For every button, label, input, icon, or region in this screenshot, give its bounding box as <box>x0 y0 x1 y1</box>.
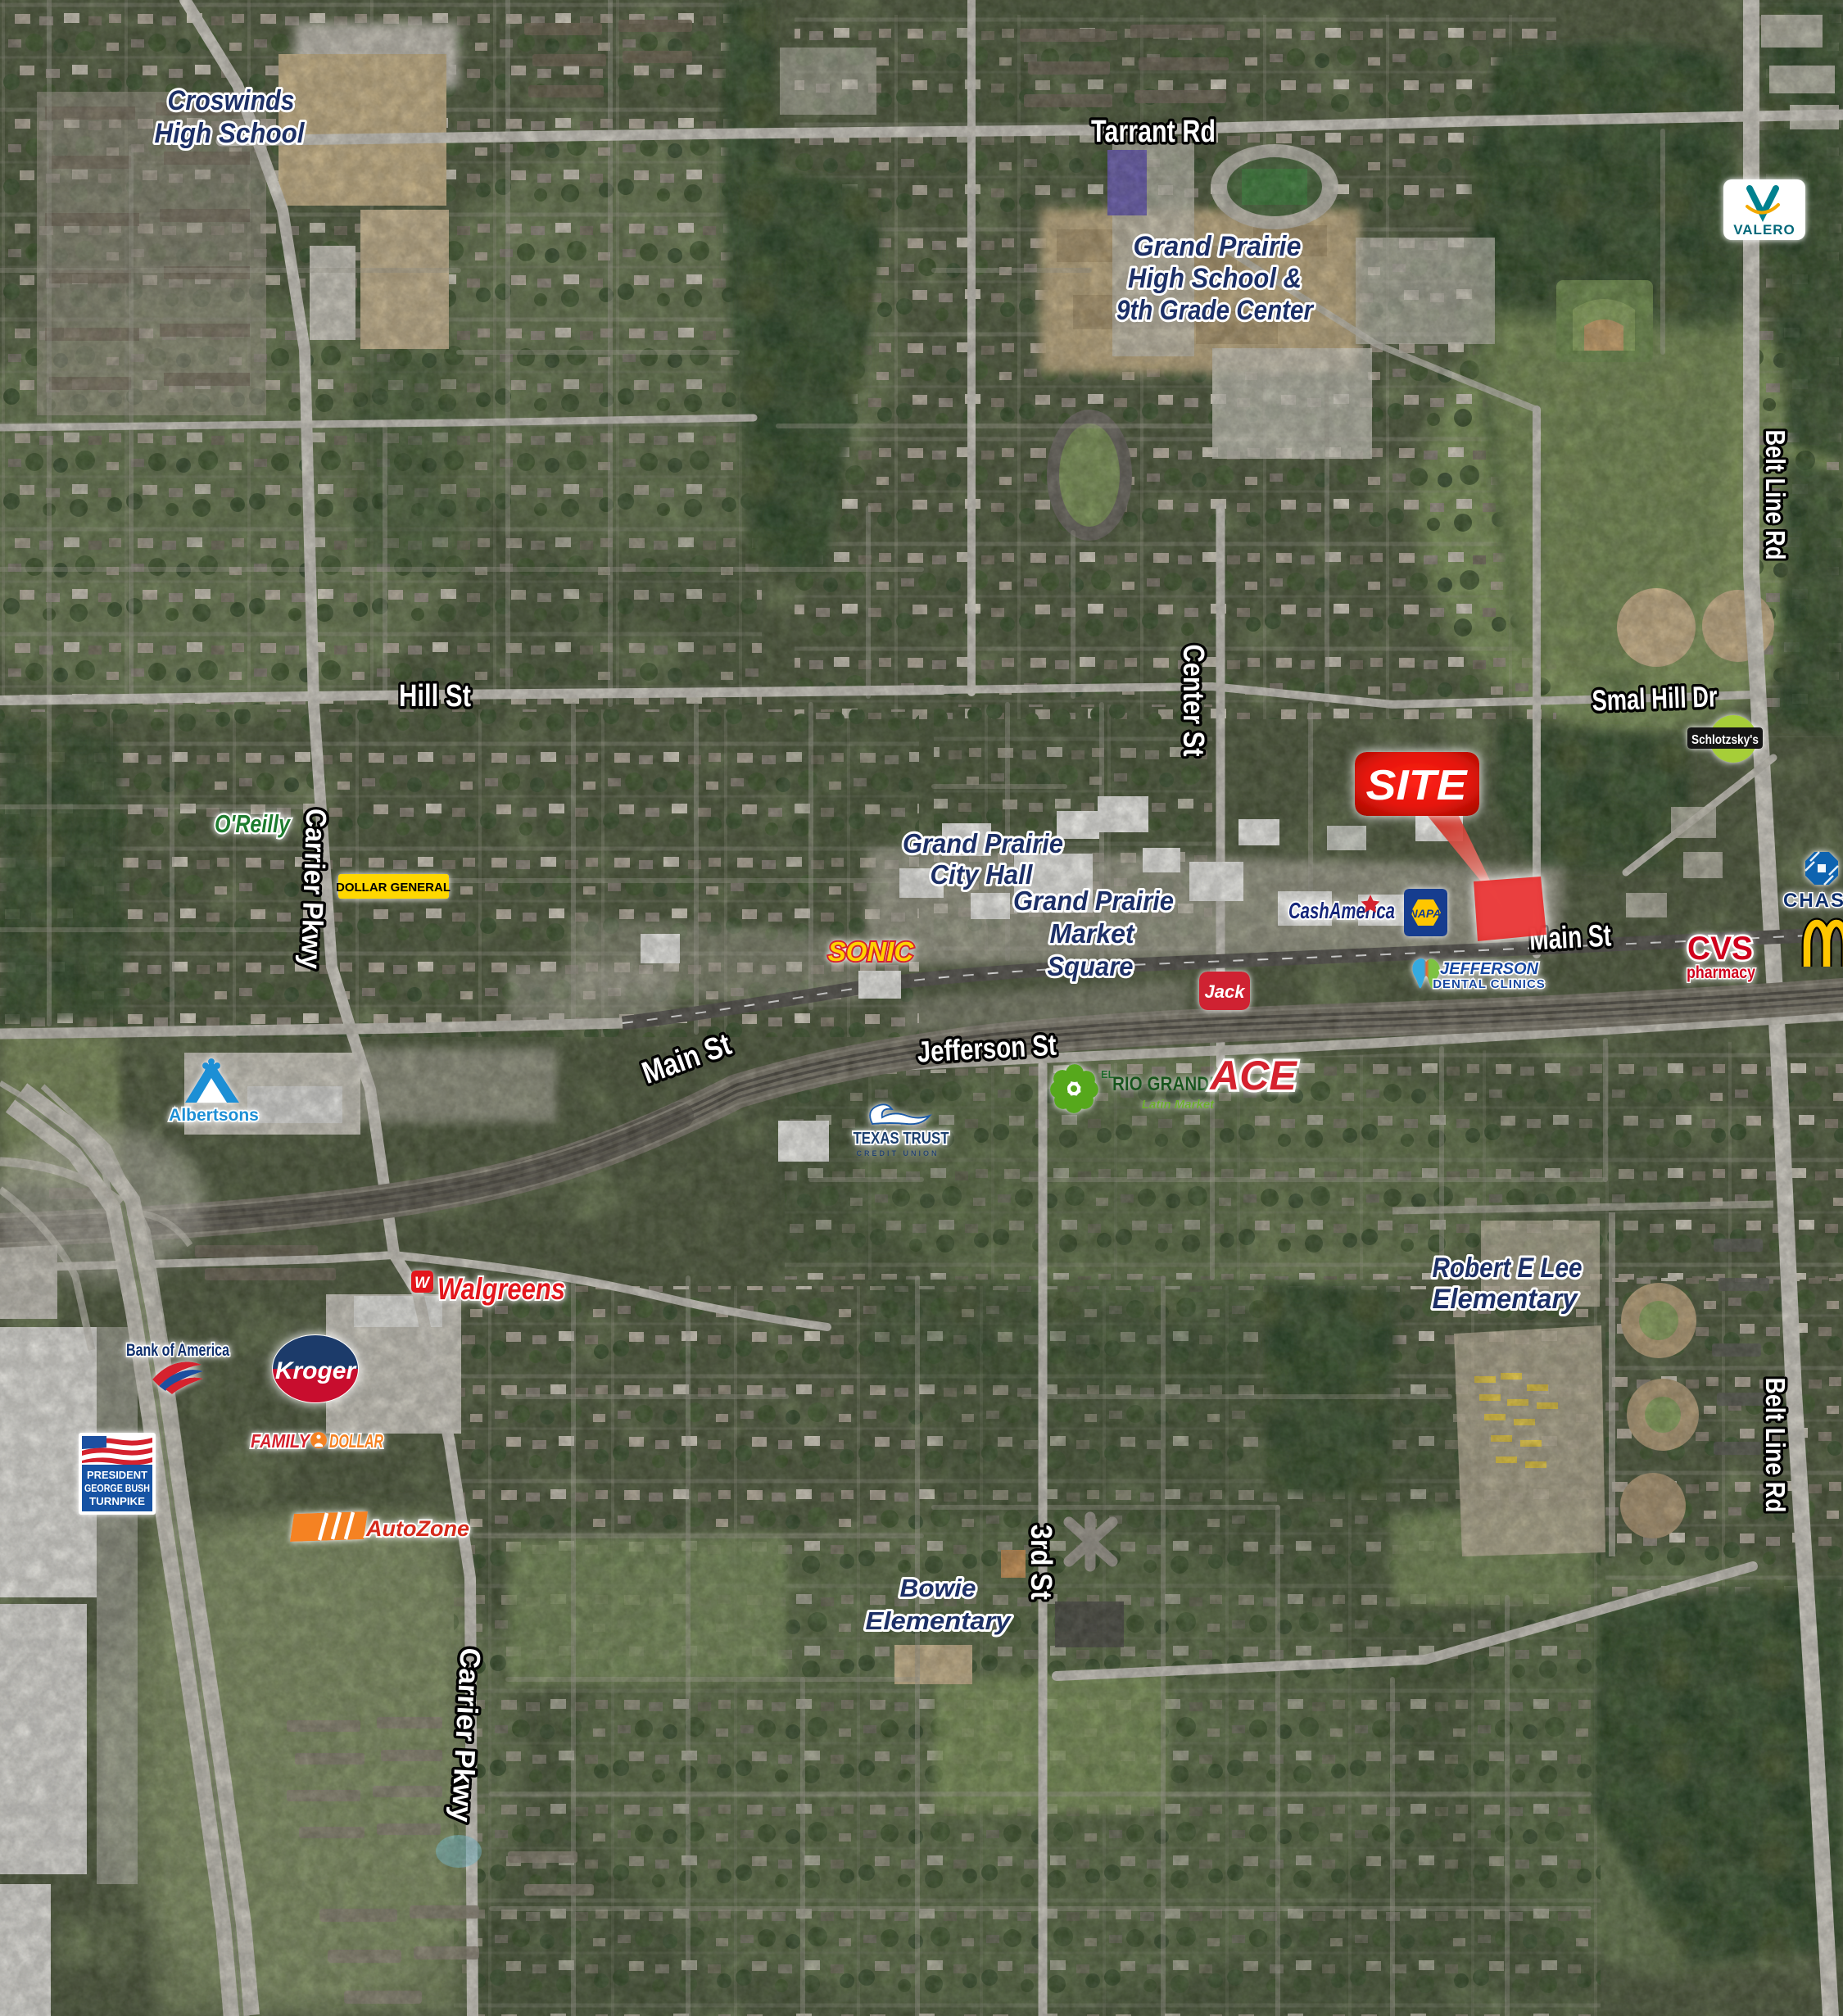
svg-text:RIO GRANDE: RIO GRANDE <box>1112 1073 1220 1095</box>
svg-text:9th Grade Center: 9th Grade Center <box>1116 295 1315 326</box>
svg-text:TEXAS TRUST: TEXAS TRUST <box>854 1130 949 1148</box>
svg-text:Square: Square <box>1048 951 1134 981</box>
svg-text:CHASE: CHASE <box>1783 890 1843 912</box>
svg-text:SONIC: SONIC <box>828 936 915 967</box>
svg-text:Belt Line Rd: Belt Line Rd <box>1760 430 1791 560</box>
svg-text:GEORGE BUSH: GEORGE BUSH <box>84 1482 150 1494</box>
svg-text:Center St: Center St <box>1177 645 1211 757</box>
svg-text:ACE: ACE <box>1208 1053 1297 1099</box>
svg-text:SITE: SITE <box>1366 762 1468 809</box>
svg-text:High School &: High School & <box>1128 263 1302 294</box>
svg-text:Hill St: Hill St <box>399 679 471 714</box>
svg-text:W: W <box>414 1275 431 1292</box>
svg-text:Elementary: Elementary <box>1433 1284 1579 1315</box>
svg-text:JEFFERSON: JEFFERSON <box>1440 960 1539 978</box>
svg-text:Robert E Lee: Robert E Lee <box>1433 1253 1583 1284</box>
svg-text:Tarrant Rd: Tarrant Rd <box>1091 115 1216 149</box>
svg-text:Jack: Jack <box>1205 981 1247 1002</box>
svg-text:Schlotzsky's: Schlotzsky's <box>1691 733 1759 747</box>
svg-text:Grand Prairie: Grand Prairie <box>903 828 1063 858</box>
svg-text:TURNPIKE: TURNPIKE <box>89 1495 145 1507</box>
svg-text:Grand Prairie: Grand Prairie <box>1134 231 1302 262</box>
svg-text:Elementary: Elementary <box>866 1606 1012 1635</box>
svg-text:3rd St: 3rd St <box>1025 1524 1058 1600</box>
svg-text:Grand Prairie: Grand Prairie <box>1013 886 1174 916</box>
svg-text:AutoZone: AutoZone <box>365 1516 469 1541</box>
svg-text:Belt Line Rd: Belt Line Rd <box>1760 1378 1791 1513</box>
svg-text:Smal Hill Dr: Smal Hill Dr <box>1592 679 1718 717</box>
svg-text:CREDIT UNION: CREDIT UNION <box>857 1149 940 1158</box>
svg-text:Carrier Pkwy: Carrier Pkwy <box>295 808 333 970</box>
svg-text:O'Reilly: O'Reilly <box>215 809 291 838</box>
svg-text:CVS: CVS <box>1687 931 1753 967</box>
svg-text:VALERO: VALERO <box>1733 222 1795 238</box>
svg-text:DENTAL CLINICS: DENTAL CLINICS <box>1433 977 1546 991</box>
svg-text:PRESIDENT: PRESIDENT <box>87 1469 147 1481</box>
svg-text:NAPA: NAPA <box>1410 907 1442 920</box>
svg-text:Kroger: Kroger <box>275 1357 358 1384</box>
svg-text:Market: Market <box>1050 918 1136 949</box>
svg-text:DOLLAR: DOLLAR <box>329 1430 383 1452</box>
svg-text:FAMILY: FAMILY <box>251 1430 311 1452</box>
svg-text:Latin Market: Latin Market <box>1142 1098 1215 1112</box>
svg-text:Bowie: Bowie <box>900 1574 976 1602</box>
svg-text:Bank of America: Bank of America <box>126 1341 229 1360</box>
svg-text:Albertsons: Albertsons <box>169 1106 259 1125</box>
svg-text:Croswinds: Croswinds <box>168 85 295 116</box>
svg-text:High School: High School <box>155 118 306 149</box>
svg-text:DOLLAR GENERAL: DOLLAR GENERAL <box>336 881 451 895</box>
svg-text:Walgreens: Walgreens <box>437 1272 565 1306</box>
svg-text:pharmacy: pharmacy <box>1687 963 1755 982</box>
